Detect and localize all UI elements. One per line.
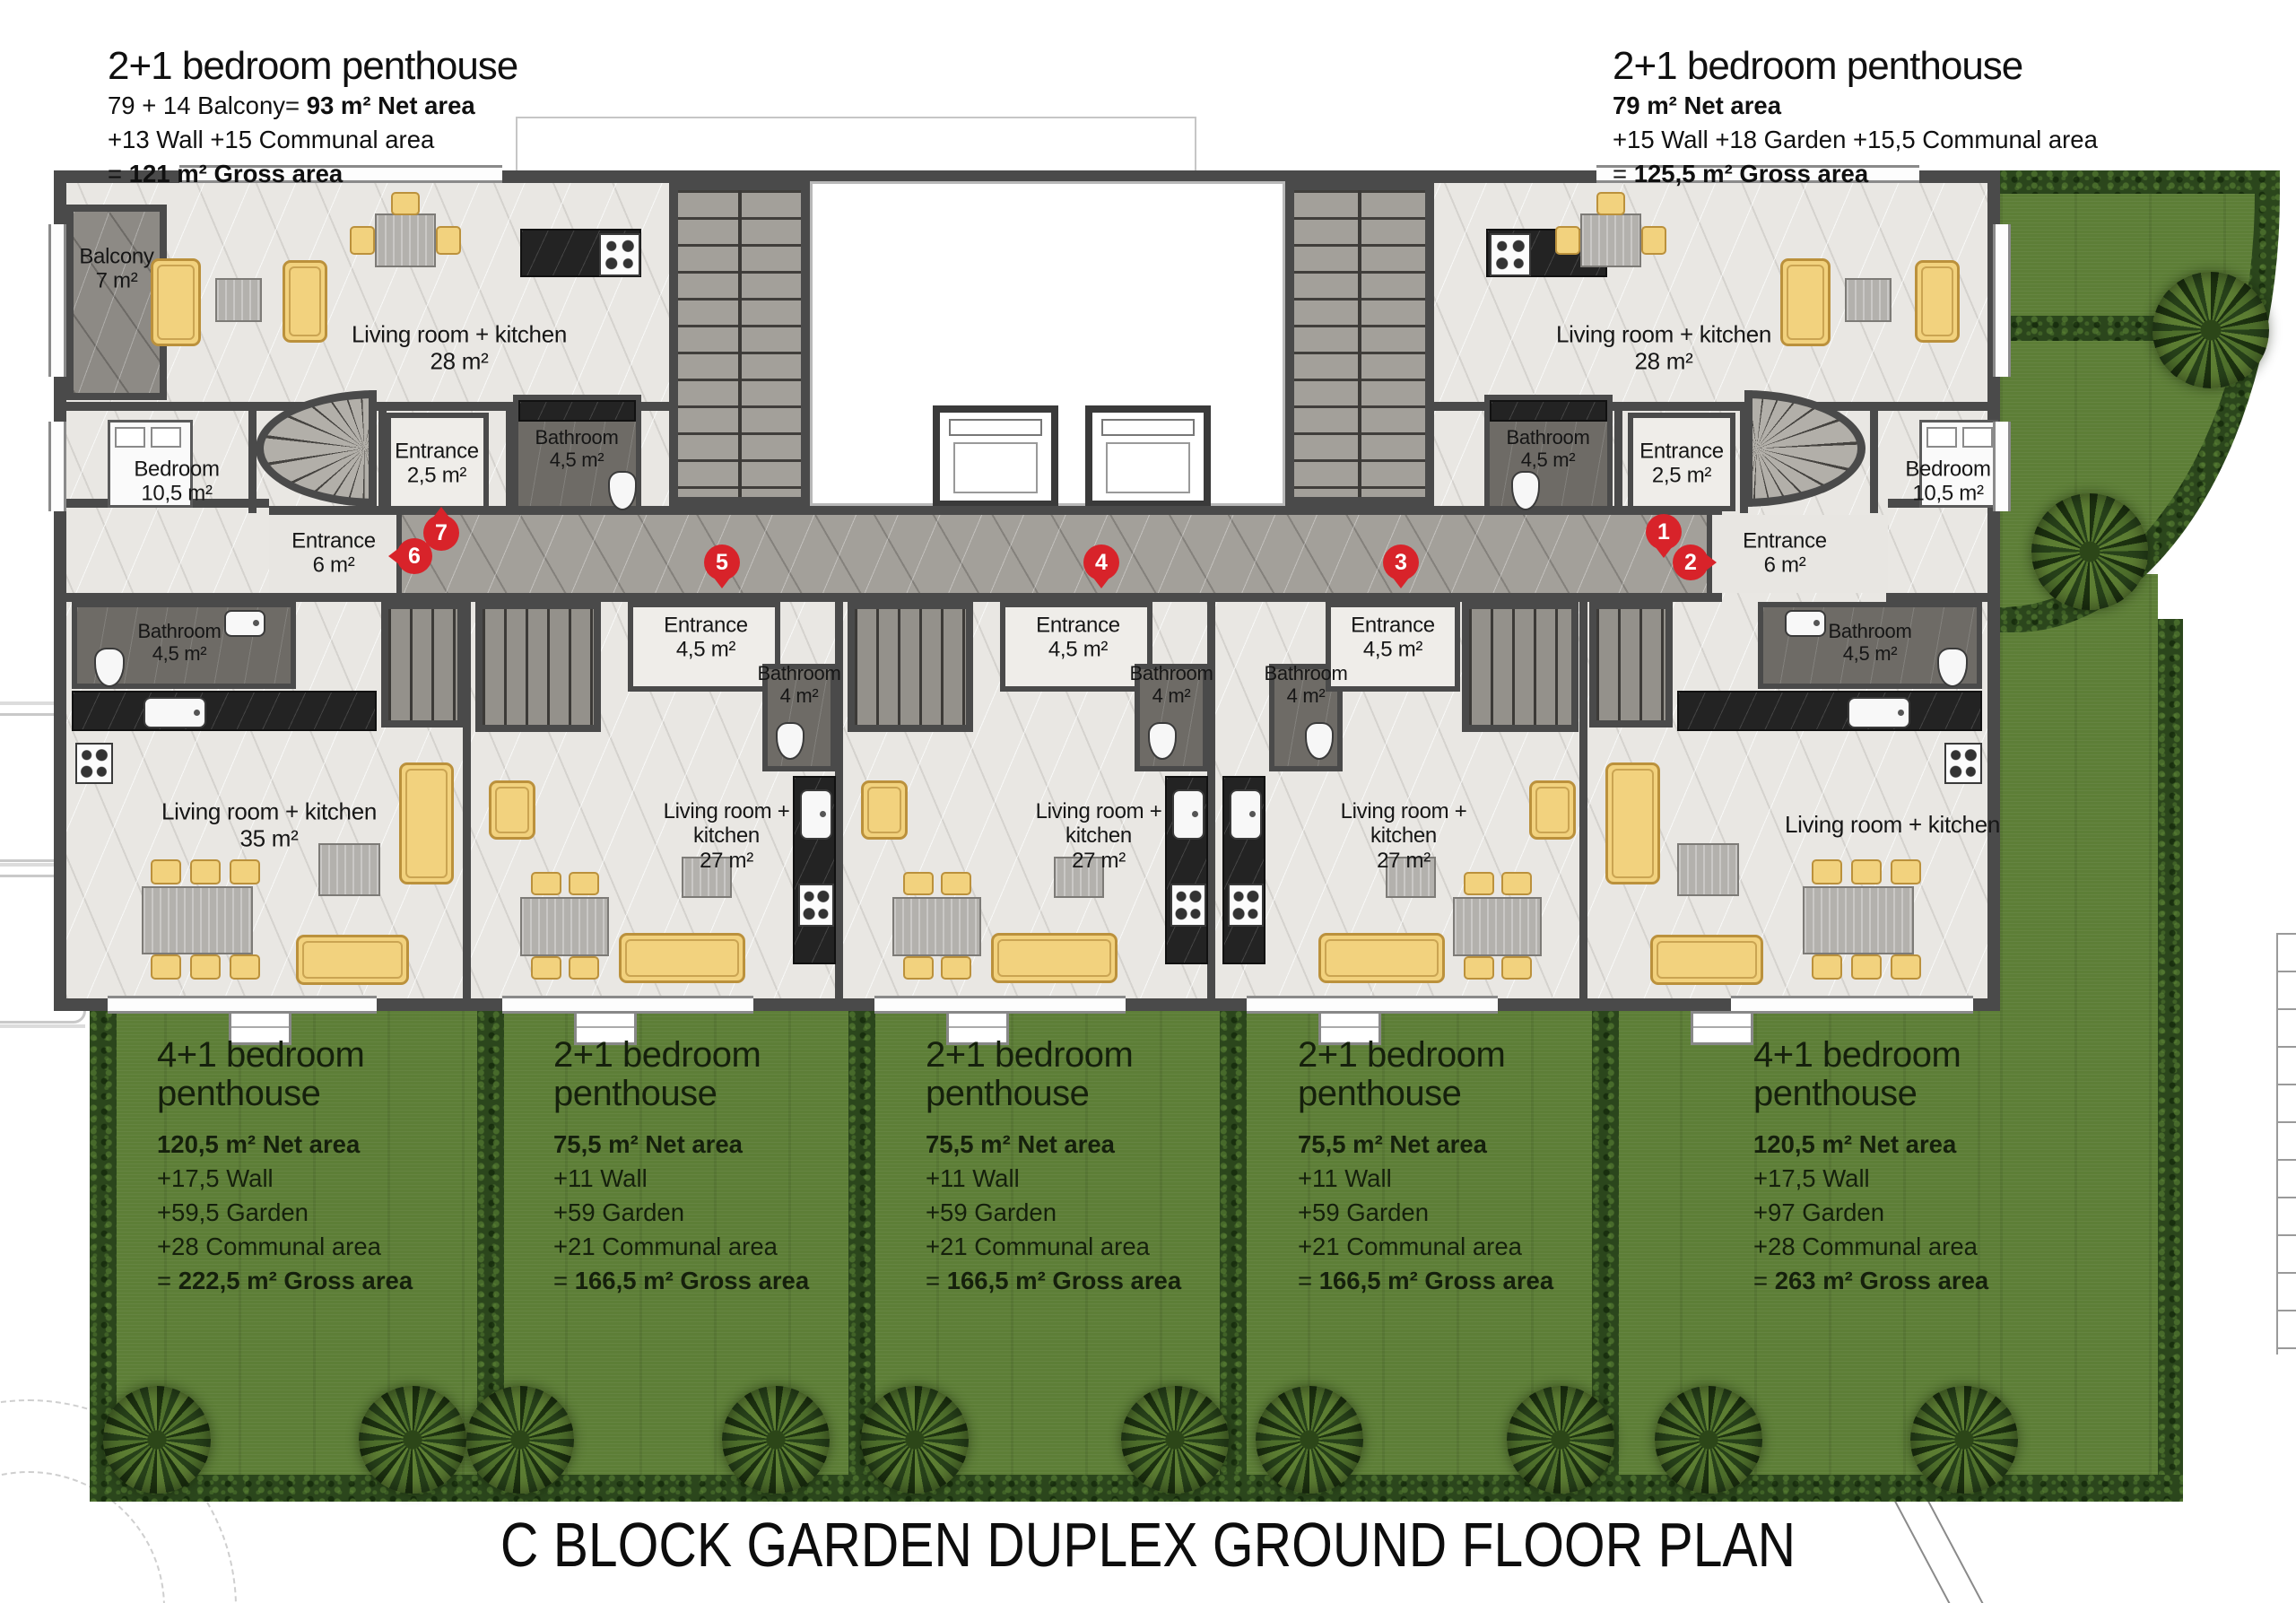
roof-outline — [516, 117, 1196, 176]
sink-icon — [1785, 610, 1826, 637]
sofa — [151, 258, 201, 346]
gross-area-value: 222,5 m² Gross area — [178, 1267, 413, 1294]
chair — [1851, 954, 1882, 980]
room-label-u4-living: Living room + kitchen 27 m² — [1027, 799, 1170, 873]
stove-icon — [599, 233, 640, 276]
room-area: 4,5 m² — [1829, 642, 1912, 665]
kitchen-counter — [1677, 691, 1982, 731]
room-name: Living room + kitchen — [1332, 799, 1475, 849]
pin-3: 3 — [1383, 544, 1419, 580]
gross-area-line: = 166,5 m² Gross area — [926, 1264, 1181, 1298]
equals-sign: = — [1753, 1267, 1775, 1294]
room-label-tr-bedroom: Bedroom 10,5 m² — [1905, 457, 1990, 507]
room-area: 4,5 m² — [535, 449, 619, 471]
room-label-u3-living: Living room + kitchen 27 m² — [1332, 799, 1475, 873]
pin-1: 1 — [1646, 514, 1682, 550]
palm-tree-icon — [466, 1386, 574, 1494]
sofa — [296, 935, 409, 985]
kitchen-sink-icon — [1848, 697, 1910, 728]
garden-line: +59,5 Garden — [157, 1196, 413, 1230]
pin-number: 4 — [1095, 550, 1108, 576]
wall-line: +17,5 Wall — [157, 1162, 413, 1196]
chair — [1464, 956, 1494, 980]
room-label-u5-living: Living room + kitchen 27 m² — [655, 799, 798, 873]
elevation-ruler — [2276, 933, 2296, 1355]
sofa — [1915, 260, 1960, 343]
pin-2: 2 — [1673, 544, 1709, 580]
net-area-value: 93 m² Net area — [307, 91, 475, 119]
room-label-tr-entrance: Entrance 2,5 m² — [1639, 440, 1724, 489]
garden-annotation-2: 2+1 bedroom penthouse 75,5 m² Net area +… — [553, 1036, 809, 1298]
equals-sign: = — [108, 160, 129, 187]
room-label-u5-entrance: Entrance 4,5 m² — [664, 614, 748, 663]
gross-area-value: 166,5 m² Gross area — [575, 1267, 809, 1294]
chair — [1596, 192, 1625, 215]
chair — [151, 859, 181, 884]
palm-tree-icon — [861, 1386, 969, 1494]
room-label-bl-living: Living room + kitchen 35 m² — [135, 798, 404, 851]
floor-plan-canvas: Balcony 7 m² Living room + kitchen 28 m²… — [0, 0, 2296, 1603]
room-label-tr-living: Living room + kitchen 28 m² — [1529, 321, 1798, 374]
room-label-bl-bathroom: Bathroom 4,5 m² — [138, 620, 222, 665]
net-area-line: 75,5 m² Net area — [1298, 1128, 1553, 1162]
bath-counter — [518, 400, 636, 422]
garden-step — [1691, 1011, 1753, 1045]
room-area: 35 m² — [135, 825, 404, 852]
apartment-type-title: 4+1 bedroom penthouse — [1753, 1036, 2005, 1113]
garden-line: +97 Garden — [1753, 1196, 2005, 1230]
palm-tree-icon — [722, 1386, 830, 1494]
net-area-line: 75,5 m² Net area — [553, 1128, 809, 1162]
pin-number: 6 — [408, 544, 421, 570]
stove-icon — [1944, 743, 1982, 784]
annotation-top-right: 2+1 bedroom penthouse 79 m² Net area +15… — [1613, 47, 2098, 188]
unit-stair — [475, 602, 601, 732]
room-area: 7 m² — [79, 269, 153, 293]
chair — [391, 192, 420, 215]
equals-sign: = — [553, 1267, 575, 1294]
gross-area-line: = 166,5 m² Gross area — [1298, 1264, 1553, 1298]
pin-number: 3 — [1395, 550, 1407, 576]
room-name: Entrance — [1743, 529, 1827, 553]
room-name: Bedroom — [134, 457, 219, 482]
gross-area-line: = 166,5 m² Gross area — [553, 1264, 809, 1298]
sofa — [1318, 933, 1445, 983]
pin-7: 7 — [423, 515, 459, 551]
unit-stair — [1462, 602, 1578, 732]
apartment-type-title: 2+1 bedroom penthouse — [1613, 47, 2098, 86]
room-name: Bathroom — [1130, 662, 1213, 684]
sofa — [399, 762, 454, 884]
gross-area-value: 166,5 m² Gross area — [947, 1267, 1181, 1294]
dining-table — [375, 213, 436, 267]
chair — [569, 956, 599, 980]
gross-area-value: 125,5 m² Gross area — [1634, 160, 1868, 187]
palm-tree-icon — [1910, 1386, 2018, 1494]
chair — [436, 226, 461, 255]
gross-area-line: = 125,5 m² Gross area — [1613, 159, 2098, 188]
chair — [941, 956, 971, 980]
room-name: Living room + kitchen — [325, 321, 594, 348]
chair — [1812, 859, 1842, 884]
chair — [941, 872, 971, 895]
wall-line: +11 Wall — [926, 1162, 1181, 1196]
coffee-table — [1677, 843, 1739, 896]
equals-sign: = — [1298, 1267, 1319, 1294]
wall — [1614, 404, 1622, 513]
room-name: Bathroom — [1829, 620, 1912, 642]
annotation-top-left: 2+1 bedroom penthouse 79 + 14 Balcony= 9… — [108, 47, 517, 188]
room-area: 27 m² — [655, 849, 798, 873]
palm-tree-icon — [1121, 1386, 1229, 1494]
pin-number: 7 — [435, 520, 448, 546]
window — [48, 224, 66, 377]
pin-number: 2 — [1684, 550, 1697, 576]
room-area: 4,5 m² — [1036, 638, 1120, 662]
wall — [1870, 404, 1878, 513]
wall-communal-line: +13 Wall +15 Communal area — [108, 125, 517, 154]
room-label-br-bathroom: Bathroom 4,5 m² — [1829, 620, 1912, 665]
net-area-line: 79 m² Net area — [1613, 91, 2098, 120]
room-name: Entrance — [1639, 440, 1724, 464]
unit-stair — [381, 602, 465, 727]
room-area: 4 m² — [1130, 684, 1213, 707]
gross-area-value: 166,5 m² Gross area — [1319, 1267, 1553, 1294]
garden-annotation-3: 2+1 bedroom penthouse 75,5 m² Net area +… — [926, 1036, 1181, 1298]
communal-line: +21 Communal area — [553, 1230, 809, 1264]
armchair — [861, 780, 908, 840]
wall-line: +17,5 Wall — [1753, 1162, 2005, 1196]
room-area: 28 m² — [1529, 348, 1798, 375]
room-name: Living room + kitchen — [1758, 812, 2027, 839]
apartment-type-title: 4+1 bedroom penthouse — [157, 1036, 408, 1113]
stove-icon — [75, 743, 113, 784]
communal-line: +28 Communal area — [1753, 1230, 2005, 1264]
elevator-1 — [933, 405, 1058, 508]
net-area-line: 79 + 14 Balcony= 93 m² Net area — [108, 91, 517, 120]
room-name: Balcony — [79, 245, 153, 269]
room-name: Entrance — [395, 440, 479, 464]
corridor — [269, 506, 1722, 602]
palm-tree-icon — [359, 1386, 466, 1494]
wall — [248, 404, 257, 513]
right-garden-band — [2000, 574, 2158, 1502]
chair — [1501, 956, 1532, 980]
unit-stair — [848, 602, 973, 732]
sofa — [619, 933, 745, 983]
garden-annotation-5: 4+1 bedroom penthouse 120,5 m² Net area … — [1753, 1036, 2005, 1298]
chair — [531, 872, 561, 895]
palm-tree-icon — [1256, 1386, 1363, 1494]
wall — [66, 593, 273, 602]
coffee-table — [215, 278, 262, 322]
communal-line: +21 Communal area — [926, 1230, 1181, 1264]
pin-number: 5 — [716, 550, 728, 576]
chair — [151, 954, 181, 980]
pin-number: 1 — [1657, 519, 1670, 545]
sofa — [283, 260, 327, 343]
wall-line: +11 Wall — [553, 1162, 809, 1196]
room-area: 27 m² — [1027, 849, 1170, 873]
apartment-type-title: 2+1 bedroom penthouse — [926, 1036, 1177, 1113]
room-label-hall-left: Entrance 6 m² — [291, 529, 376, 579]
wall-line: +11 Wall — [1298, 1162, 1553, 1196]
room-name: Entrance — [664, 614, 748, 638]
palm-tree-icon — [2031, 493, 2148, 610]
chair — [1812, 954, 1842, 980]
chair — [230, 954, 260, 980]
room-label-tr-bathroom: Bathroom 4,5 m² — [1507, 426, 1590, 471]
net-area-value: 79 m² Net area — [1613, 91, 1781, 119]
chair — [1464, 872, 1494, 895]
gross-area-line: = 222,5 m² Gross area — [157, 1264, 413, 1298]
armchair — [489, 780, 535, 840]
room-area: 2,5 m² — [1639, 464, 1724, 488]
room-area: 4,5 m² — [664, 638, 748, 662]
room-label-u3-bathroom: Bathroom 4 m² — [1265, 662, 1348, 707]
room-area: 27 m² — [1332, 849, 1475, 873]
room-name: Living room + kitchen — [1027, 799, 1170, 849]
room-label-hall-right: Entrance 6 m² — [1743, 529, 1827, 579]
dining-table — [1453, 897, 1542, 956]
palm-tree-icon — [103, 1386, 211, 1494]
kitchen-sink-icon — [1230, 789, 1262, 840]
pin-4: 4 — [1083, 544, 1119, 580]
sink-icon — [224, 610, 265, 637]
page-title: C BLOCK GARDEN DUPLEX GROUND FLOOR PLAN — [500, 1509, 1796, 1581]
chair — [903, 872, 934, 895]
room-name: Bathroom — [758, 662, 841, 684]
apartment-type-title: 2+1 bedroom penthouse — [1298, 1036, 1549, 1113]
chair — [1501, 872, 1532, 895]
kitchen-sink-icon — [1172, 789, 1205, 840]
room-name: Bathroom — [535, 426, 619, 449]
dining-table — [520, 897, 609, 956]
dining-table — [142, 886, 253, 954]
equals-sign: = — [926, 1267, 947, 1294]
elevator-2 — [1085, 405, 1211, 508]
room-area: 6 m² — [1743, 553, 1827, 578]
room-area: 4,5 m² — [138, 642, 222, 665]
stove-icon — [798, 884, 834, 927]
room-label-u3-entrance: Entrance 4,5 m² — [1351, 614, 1435, 663]
window — [48, 422, 66, 511]
stove-icon — [1228, 884, 1264, 927]
room-area: 28 m² — [325, 348, 594, 375]
chair — [1641, 226, 1666, 255]
room-label-balcony: Balcony 7 m² — [79, 245, 153, 294]
hedge-border-right — [2158, 619, 2183, 1502]
dining-table — [1803, 886, 1914, 954]
garden-line: +59 Garden — [1298, 1196, 1553, 1230]
gross-area-value: 263 m² Gross area — [1775, 1267, 1988, 1294]
stove-icon — [1170, 884, 1206, 927]
net-area-calc: 79 + 14 Balcony= — [108, 91, 307, 119]
stove-icon — [1490, 233, 1531, 276]
room-area: 2,5 m² — [395, 464, 479, 488]
wall-garden-communal-line: +15 Wall +18 Garden +15,5 Communal area — [1613, 125, 2098, 154]
kitchen-sink-icon — [143, 697, 206, 728]
room-name: Bedroom — [1905, 457, 1990, 482]
net-area-line: 75,5 m² Net area — [926, 1128, 1181, 1162]
chair — [190, 859, 221, 884]
dining-table — [1580, 213, 1641, 267]
room-label-u4-bathroom: Bathroom 4 m² — [1130, 662, 1213, 707]
communal-line: +28 Communal area — [157, 1230, 413, 1264]
room-area: 4,5 m² — [1507, 449, 1590, 471]
sofa — [1650, 935, 1763, 985]
room-label-u5-bathroom: Bathroom 4 m² — [758, 662, 841, 707]
room-label-u4-entrance: Entrance 4,5 m² — [1036, 614, 1120, 663]
room-area: 4 m² — [758, 684, 841, 707]
garden-line: +59 Garden — [926, 1196, 1181, 1230]
garden-annotation-1: 4+1 bedroom penthouse 120,5 m² Net area … — [157, 1036, 413, 1298]
gross-area-value: 121 m² Gross area — [129, 160, 343, 187]
room-label-tl-living: Living room + kitchen 28 m² — [325, 321, 594, 374]
room-name: Entrance — [291, 529, 376, 553]
garden-annotation-4: 2+1 bedroom penthouse 75,5 m² Net area +… — [1298, 1036, 1553, 1298]
room-name: Bathroom — [1507, 426, 1590, 449]
stairwell-right — [1285, 181, 1434, 506]
wall — [1886, 593, 1987, 602]
equals-sign: = — [1613, 160, 1634, 187]
chair — [1891, 954, 1921, 980]
chair — [531, 956, 561, 980]
chair — [350, 226, 375, 255]
room-name: Living room + kitchen — [135, 798, 404, 825]
armchair — [1529, 780, 1576, 840]
bath-counter — [1490, 400, 1607, 422]
gross-area-line: = 121 m² Gross area — [108, 159, 517, 188]
window — [1993, 422, 2011, 511]
palm-tree-icon — [1507, 1386, 1614, 1494]
chair — [1891, 859, 1921, 884]
room-label-tl-bathroom: Bathroom 4,5 m² — [535, 426, 619, 471]
room-label-tl-bedroom: Bedroom 10,5 m² — [134, 457, 219, 507]
palm-tree-icon — [1655, 1386, 1762, 1494]
chair — [190, 954, 221, 980]
unit-stair — [1589, 602, 1673, 727]
room-name: Bathroom — [138, 620, 222, 642]
room-name: Entrance — [1351, 614, 1435, 638]
chair — [1851, 859, 1882, 884]
kitchen-sink-icon — [800, 789, 832, 840]
pin-5: 5 — [704, 544, 740, 580]
hedge-divider — [2000, 316, 2158, 341]
gross-area-line: = 263 m² Gross area — [1753, 1264, 2005, 1298]
room-area: 4 m² — [1265, 684, 1348, 707]
chair — [569, 872, 599, 895]
net-area-line: 120,5 m² Net area — [157, 1128, 413, 1162]
parking-line — [0, 1024, 85, 1028]
chair — [903, 956, 934, 980]
window — [1731, 996, 1973, 1014]
sofa — [991, 933, 1118, 983]
room-label-tl-entrance: Entrance 2,5 m² — [395, 440, 479, 489]
unit-divider-wall — [1579, 602, 1587, 1006]
dining-table — [892, 897, 981, 956]
room-name: Living room + kitchen — [1529, 321, 1798, 348]
chair — [1555, 226, 1580, 255]
kitchen-counter — [72, 691, 377, 731]
room-name: Bathroom — [1265, 662, 1348, 684]
room-area: 10,5 m² — [1905, 482, 1990, 506]
room-label-br-living: Living room + kitchen — [1758, 812, 2027, 839]
stairwell-left — [669, 181, 810, 506]
apartment-type-title: 2+1 bedroom penthouse — [108, 47, 517, 86]
apartment-type-title: 2+1 bedroom penthouse — [553, 1036, 804, 1113]
window — [1993, 224, 2011, 377]
room-area: 6 m² — [291, 553, 376, 578]
equals-sign: = — [157, 1267, 178, 1294]
room-name: Entrance — [1036, 614, 1120, 638]
room-area: 4,5 m² — [1351, 638, 1435, 662]
chair — [230, 859, 260, 884]
coffee-table — [1845, 278, 1892, 322]
room-name: Living room + kitchen — [655, 799, 798, 849]
net-area-line: 120,5 m² Net area — [1753, 1128, 2005, 1162]
garden-line: +59 Garden — [553, 1196, 809, 1230]
sofa — [1605, 762, 1660, 884]
communal-line: +21 Communal area — [1298, 1230, 1553, 1264]
palm-tree-icon — [2152, 272, 2269, 388]
room-area: 10,5 m² — [134, 482, 219, 506]
